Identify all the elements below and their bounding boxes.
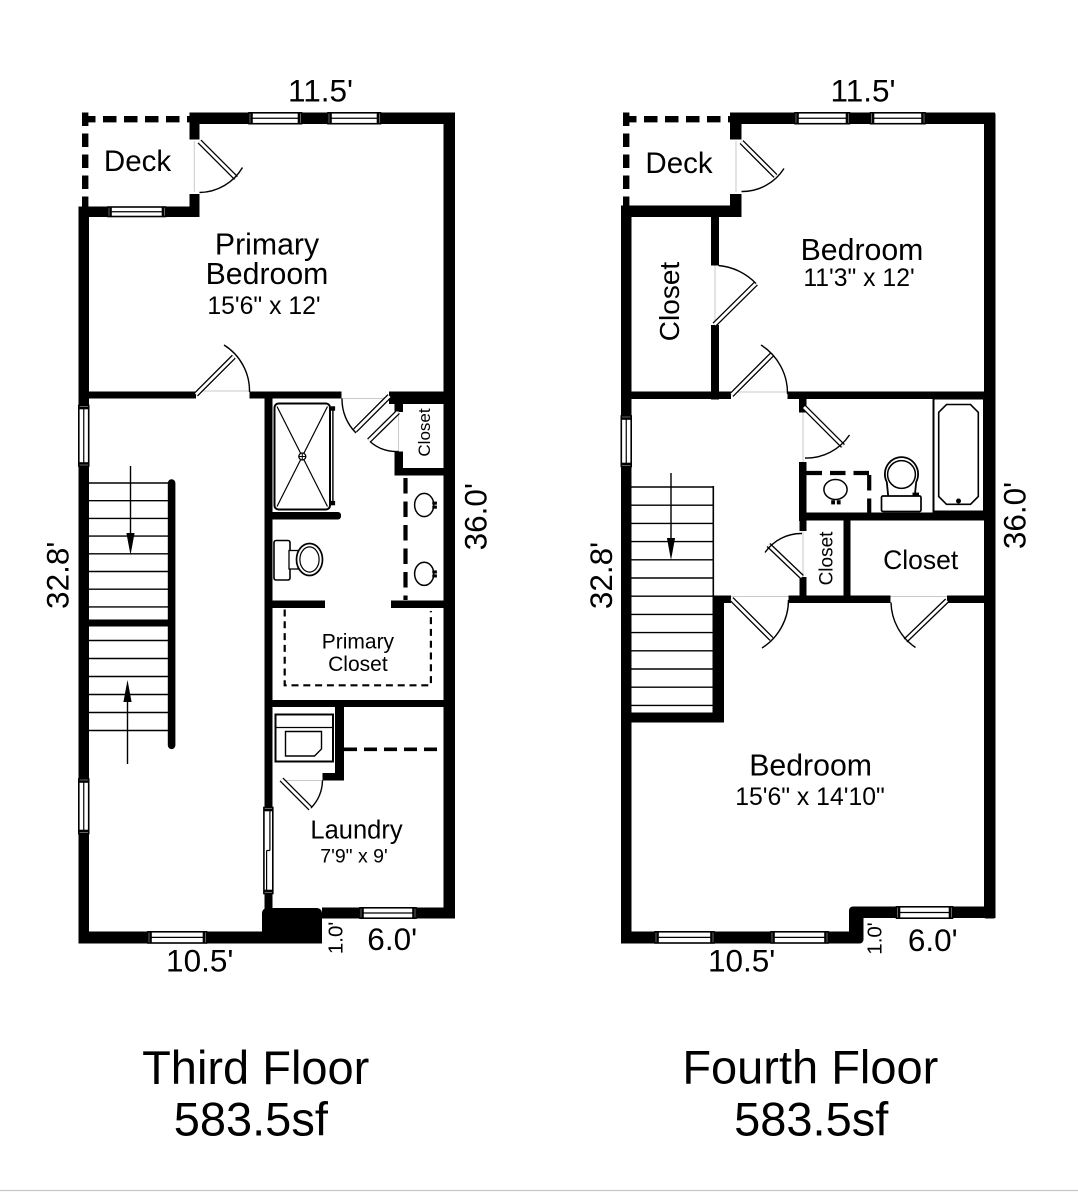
svg-text:583.5sf: 583.5sf [174,1093,329,1146]
svg-text:Fourth Floor: Fourth Floor [682,1041,938,1094]
svg-text:15'6" x 12': 15'6" x 12' [207,293,320,320]
svg-text:6.0': 6.0' [908,922,958,958]
svg-text:7'9" x 9': 7'9" x 9' [320,846,388,868]
svg-text:1.0': 1.0' [325,922,348,954]
svg-text:Bedroom: Bedroom [749,750,872,783]
svg-text:10.5': 10.5' [708,943,775,979]
svg-text:32.8': 32.8' [583,542,619,609]
svg-text:Deck: Deck [104,145,171,178]
svg-text:Deck: Deck [645,147,712,180]
svg-text:36.0': 36.0' [997,482,1033,549]
svg-text:Closet: Closet [654,262,685,342]
svg-text:15'6" x 14'10": 15'6" x 14'10" [735,784,885,811]
svg-text:Laundry: Laundry [310,817,402,845]
svg-text:Closet: Closet [328,653,388,676]
svg-text:36.0': 36.0' [458,483,494,550]
svg-text:11'3" x 12': 11'3" x 12' [803,265,914,292]
svg-text:583.5sf: 583.5sf [734,1093,889,1146]
svg-text:Third Floor: Third Floor [142,1041,369,1094]
svg-text:11.5': 11.5' [288,73,353,109]
svg-text:6.0': 6.0' [367,921,417,957]
svg-text:Bedroom: Bedroom [206,258,329,291]
svg-text:11.5': 11.5' [831,73,896,109]
svg-text:10.5': 10.5' [166,943,233,979]
svg-text:Primary: Primary [215,229,320,262]
svg-text:32.8': 32.8' [40,542,76,609]
svg-text:Bedroom: Bedroom [801,234,924,267]
svg-text:1.0': 1.0' [864,922,887,954]
svg-text:Closet: Closet [817,531,838,586]
svg-text:Closet: Closet [415,408,434,456]
svg-text:Closet: Closet [883,545,959,575]
svg-text:Primary: Primary [322,631,395,654]
